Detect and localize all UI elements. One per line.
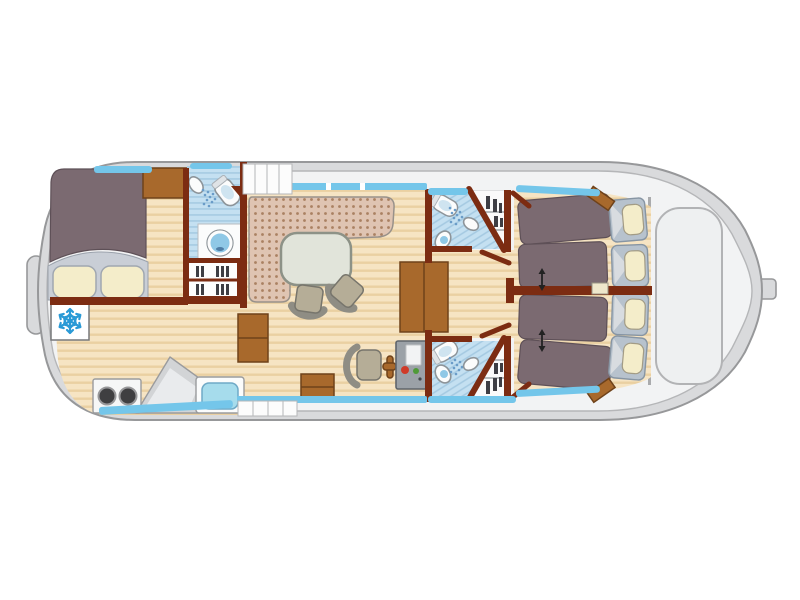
single-bed	[517, 339, 612, 391]
window-band	[428, 188, 468, 195]
window-band	[94, 166, 152, 173]
nightstand	[592, 283, 608, 294]
window-band	[190, 163, 232, 169]
step	[243, 164, 255, 194]
indicator-red	[401, 366, 409, 374]
window-gap	[360, 183, 365, 190]
step	[253, 401, 268, 416]
console-knob	[418, 377, 421, 380]
window-band	[428, 396, 516, 403]
bed-pillow-head	[608, 198, 648, 243]
engine-hatch	[656, 208, 722, 384]
double-bed-blanket	[50, 169, 146, 262]
pillow	[101, 266, 144, 298]
corridor-steps	[400, 262, 448, 332]
steering-wheel-hub	[383, 363, 396, 370]
step	[238, 401, 253, 416]
floorplan-svg	[0, 0, 800, 600]
step	[267, 164, 279, 194]
washbasin-bowl	[440, 370, 448, 378]
wall	[428, 336, 472, 342]
step	[283, 401, 297, 416]
console-panel	[406, 345, 421, 365]
top-companionway	[243, 164, 292, 194]
stern-deck	[648, 197, 722, 385]
boat-floorplan	[0, 0, 800, 600]
pillow	[53, 266, 96, 298]
wall	[504, 336, 511, 398]
bathroom-shelves	[184, 258, 242, 302]
bottom-companionway	[238, 401, 297, 416]
cabin-divider-post	[506, 278, 514, 303]
aft-bathroom-starboard	[429, 338, 506, 400]
step	[255, 164, 267, 194]
bed-pillow-head	[611, 292, 648, 335]
bow-cabin-floor	[146, 194, 188, 302]
step	[268, 401, 283, 416]
stove-burner-icon	[120, 388, 137, 405]
salon-table	[281, 233, 351, 285]
wall	[428, 246, 472, 252]
washbasin-drain	[216, 247, 224, 251]
bed-pillow-head	[611, 244, 648, 287]
indicator-green	[413, 368, 419, 374]
wall	[183, 296, 247, 304]
wall	[183, 168, 189, 302]
step	[279, 164, 292, 194]
bed-pillow-head	[608, 336, 648, 381]
wall	[504, 190, 511, 252]
single-bed	[518, 241, 607, 288]
window-gap	[326, 183, 331, 190]
aft-bathroom-port	[429, 190, 506, 252]
cabin-divider-wall	[510, 286, 652, 295]
stove-burner-icon	[99, 388, 116, 405]
washbasin-bowl	[440, 236, 448, 244]
wall	[50, 297, 188, 305]
single-bed	[518, 294, 607, 341]
